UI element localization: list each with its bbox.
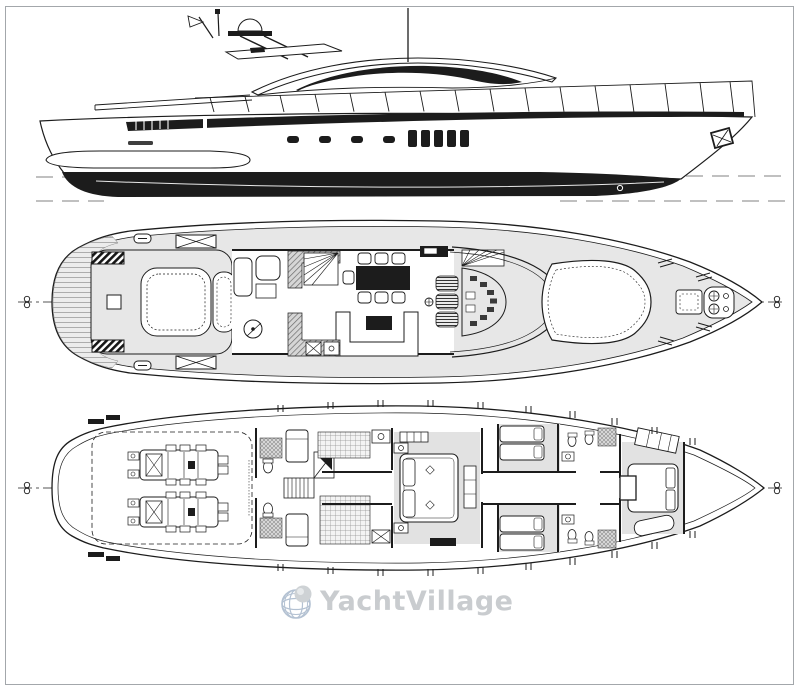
toilet [263,503,273,517]
nightstand [394,523,408,533]
pillow [666,490,675,510]
side-table [256,284,276,298]
radar-arch [188,9,342,59]
stern-bollard [88,552,104,557]
armchair [256,256,280,280]
engine [128,445,228,485]
dining-chair [358,253,371,264]
foredeck-sunpad [542,260,651,343]
helm-seat [436,276,458,291]
yacht-general-arrangement: YachtVillage [0,0,800,693]
arch-spreader [228,31,272,36]
watermark: YachtVillage [276,580,513,624]
pillow [534,428,542,440]
stairs-up [304,253,338,285]
dining-chair [392,253,405,264]
aft-sunpad [141,268,235,336]
shower-floor [598,530,616,548]
sink [562,515,574,524]
anchor-hatch [676,290,702,314]
deck-hatch [176,235,216,248]
bench-seat [234,258,252,296]
lower-deck-plan [18,400,782,576]
transom-door [107,295,121,309]
main-deck-plan [18,220,782,383]
vip-bench [620,476,636,500]
superstructure [95,8,556,110]
globe-icon [276,580,320,624]
dining-chair [375,292,388,303]
helm-seat [436,312,458,327]
pillow [403,490,415,517]
vent-grille [92,252,124,264]
shower-floor [260,518,282,538]
mooring-cleat [134,361,151,370]
helm-seat [436,294,458,309]
shower-floor [598,428,616,446]
dining-chair [358,292,371,303]
dresser [464,466,476,508]
nightstand [394,443,408,453]
twin-cabin [498,424,560,472]
toilet [263,459,273,473]
coffee-table [366,316,392,330]
steering-wheel [425,298,433,306]
stairs-down [462,250,504,266]
bar-table [244,320,262,338]
vip-cabin [620,428,684,537]
galley-counter [372,430,390,443]
galley-counter [372,530,390,543]
pillow [534,446,542,458]
shower-floor [260,438,282,458]
pillow [403,459,415,486]
dining-chair [375,253,388,264]
antenna-mast [218,13,219,36]
anchor-windlass [704,287,734,318]
stern-bollard [106,415,120,420]
mast-light [215,9,220,14]
crew-bunk [286,430,308,462]
stern-bollard [106,556,120,561]
pillow [666,468,675,488]
antenna-horn [188,16,203,27]
hull-brand-mark [128,141,153,145]
dining-chair [392,292,405,303]
master-cabin [392,428,482,548]
sink [562,452,574,461]
vent-grille [92,340,124,352]
deck-hatch [176,356,216,369]
radome [238,19,262,31]
stern-bollard [88,419,104,424]
mooring-cleat [134,234,151,243]
pillow [534,518,542,530]
swim-platform [46,151,250,168]
dining-chair [343,271,354,284]
wing-slot [250,47,265,53]
crew-bunk [286,514,308,546]
tv-cabinet [430,538,456,546]
master-bed [400,454,458,522]
sideboard [420,246,448,257]
watermark-text: YachtVillage [320,581,513,623]
whip-antenna [199,17,213,38]
twin-cabin [498,504,560,552]
pillow [534,536,542,548]
globe-sphere [295,586,312,603]
companionway-stairs [284,478,314,498]
side-profile-view [36,8,788,201]
